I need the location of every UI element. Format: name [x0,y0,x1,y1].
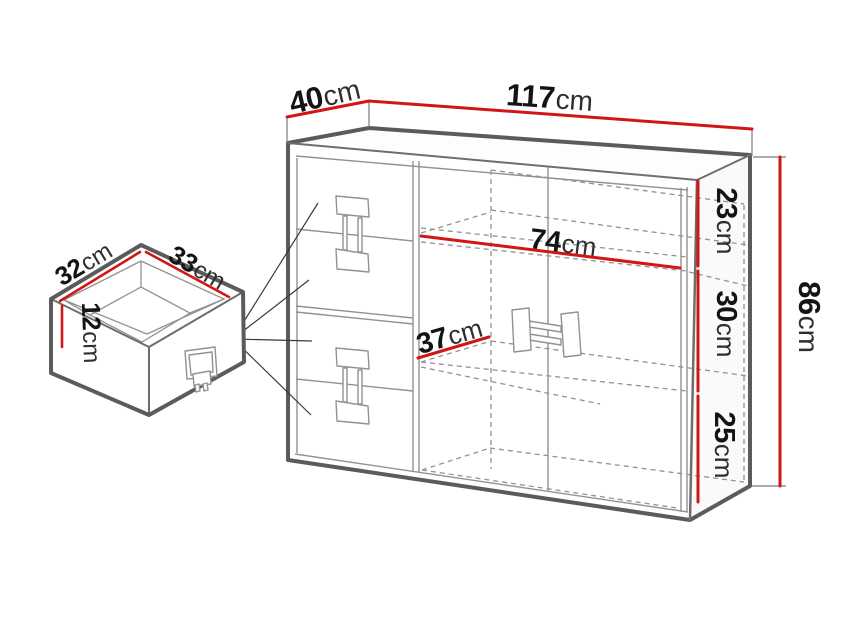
label-cabinet-depth: 40cm [286,71,364,121]
label-cabinet-width: 117cm [505,77,594,118]
label-drawer-height: 12cm [76,302,108,364]
label-cabinet-height: 86cm [792,281,827,353]
label-section-25: 25cm [708,412,740,479]
label-section-23: 23cm [710,188,742,255]
label-section-30: 30cm [710,291,742,358]
furniture-dimension-diagram: 40cm 117cm 86cm 23cm 30cm 25cm 74cm 37cm… [0,0,848,636]
diagram-canvas: 40cm 117cm 86cm 23cm 30cm 25cm 74cm 37cm… [0,0,848,636]
